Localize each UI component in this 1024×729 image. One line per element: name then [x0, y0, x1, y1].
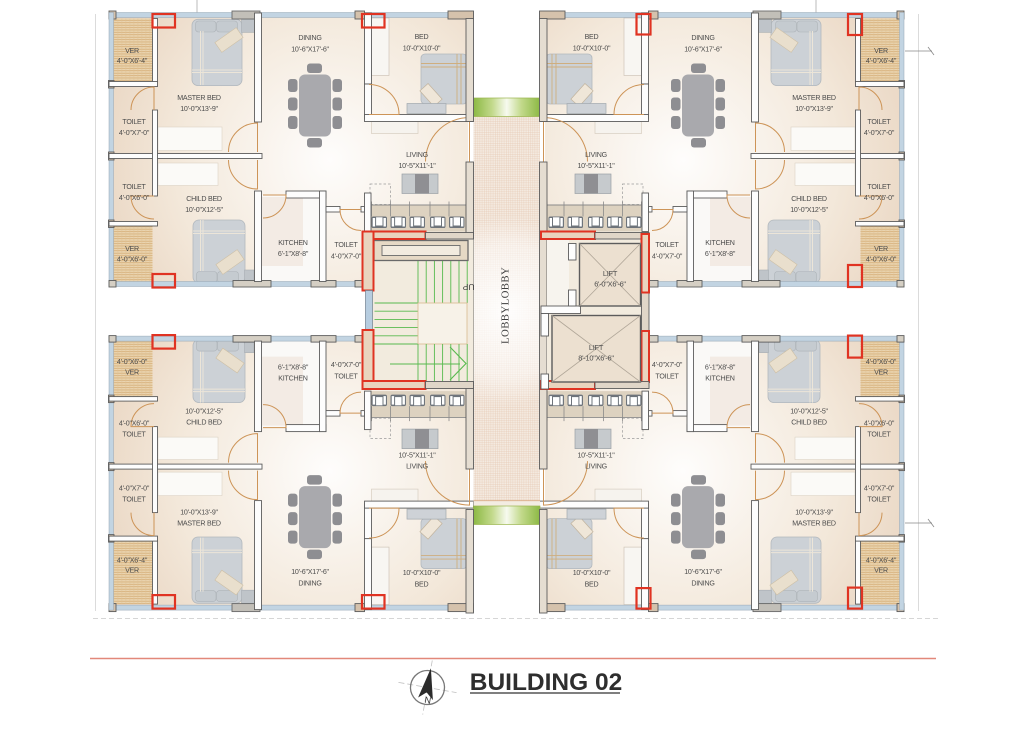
- svg-text:BED: BED: [415, 33, 429, 41]
- svg-text:TOILET: TOILET: [655, 373, 679, 381]
- svg-text:10'-0"X12'-5": 10'-0"X12'-5": [790, 206, 828, 214]
- svg-text:6'-1"X8'-8": 6'-1"X8'-8": [278, 250, 309, 258]
- svg-text:6'-1"X8'-8": 6'-1"X8'-8": [705, 364, 736, 372]
- svg-text:VER: VER: [125, 567, 139, 575]
- svg-text:LIVING: LIVING: [585, 151, 607, 159]
- svg-text:4'-0"X7'-0": 4'-0"X7'-0": [864, 129, 895, 137]
- svg-text:4'-0"X6'-0": 4'-0"X6'-0": [864, 194, 895, 202]
- svg-text:10'-5"X11'-1": 10'-5"X11'-1": [398, 162, 436, 170]
- svg-text:DINING: DINING: [298, 580, 321, 588]
- svg-text:DINING: DINING: [691, 34, 714, 42]
- svg-text:VER: VER: [874, 245, 888, 253]
- svg-text:LIVING: LIVING: [585, 463, 607, 471]
- svg-text:4'-0"X6'-0": 4'-0"X6'-0": [866, 256, 897, 264]
- svg-text:TOILET: TOILET: [334, 241, 358, 249]
- svg-text:LIFT: LIFT: [603, 269, 618, 278]
- svg-text:4'-0"X6'-0": 4'-0"X6'-0": [119, 420, 150, 428]
- svg-text:TOILET: TOILET: [867, 183, 891, 191]
- svg-text:MASTER BED: MASTER BED: [792, 520, 836, 528]
- svg-text:4'-0"X6'-0": 4'-0"X6'-0": [864, 420, 895, 428]
- svg-text:6'-0"X6'-6": 6'-0"X6'-6": [594, 280, 626, 289]
- svg-text:VER: VER: [874, 47, 888, 55]
- svg-text:10'-0"X12'-5": 10'-0"X12'-5": [185, 206, 223, 214]
- svg-text:LOBBYLOBBY: LOBBYLOBBY: [500, 267, 512, 344]
- svg-text:CHILD BED: CHILD BED: [186, 195, 222, 203]
- svg-text:KITCHEN: KITCHEN: [705, 375, 735, 383]
- svg-text:MASTER BED: MASTER BED: [177, 520, 221, 528]
- svg-text:4'-0"X6'-4": 4'-0"X6'-4": [117, 557, 148, 565]
- svg-text:6'-1"X8'-8": 6'-1"X8'-8": [705, 250, 736, 258]
- svg-text:LIVING: LIVING: [406, 463, 428, 471]
- svg-text:VER: VER: [125, 245, 139, 253]
- svg-text:VER: VER: [125, 47, 139, 55]
- svg-text:TOILET: TOILET: [334, 373, 358, 381]
- svg-text:4'-0"X7'-0": 4'-0"X7'-0": [119, 129, 150, 137]
- svg-text:10'-6"X17'-6": 10'-6"X17'-6": [291, 46, 329, 54]
- svg-text:TOILET: TOILET: [867, 431, 891, 439]
- svg-text:VER: VER: [125, 369, 139, 377]
- svg-text:10'-0"X13'-9": 10'-0"X13'-9": [795, 509, 833, 517]
- svg-text:LIVING: LIVING: [406, 151, 428, 159]
- svg-text:4'-0"X6'-4": 4'-0"X6'-4": [866, 57, 897, 65]
- svg-text:MASTER BED: MASTER BED: [177, 94, 221, 102]
- svg-text:6'-1"X8'-8": 6'-1"X8'-8": [278, 364, 309, 372]
- svg-text:TOILET: TOILET: [867, 118, 891, 126]
- svg-text:TOILET: TOILET: [122, 431, 146, 439]
- svg-text:KITCHEN: KITCHEN: [278, 239, 308, 247]
- svg-text:10'-0"X10'-0": 10'-0"X10'-0": [403, 45, 441, 53]
- svg-text:4'-0"X7'-0": 4'-0"X7'-0": [864, 485, 895, 493]
- svg-text:CHILD BED: CHILD BED: [791, 419, 827, 427]
- svg-text:TOILET: TOILET: [122, 183, 146, 191]
- svg-text:10'-0"X13'-9": 10'-0"X13'-9": [180, 509, 218, 517]
- svg-text:LIFT: LIFT: [589, 343, 604, 352]
- svg-text:8'-10"X6'-6": 8'-10"X6'-6": [578, 354, 614, 363]
- svg-text:TOILET: TOILET: [122, 118, 146, 126]
- svg-text:KITCHEN: KITCHEN: [705, 239, 735, 247]
- svg-text:BUILDING 02: BUILDING 02: [470, 669, 622, 696]
- svg-text:4'-0"X7'-0": 4'-0"X7'-0": [119, 485, 150, 493]
- svg-text:4'-0"X7'-0": 4'-0"X7'-0": [652, 253, 683, 261]
- svg-text:VER: VER: [874, 369, 888, 377]
- svg-text:DINING: DINING: [691, 580, 714, 588]
- svg-text:TOILET: TOILET: [122, 496, 146, 504]
- svg-text:10'-0"X12'-5": 10'-0"X12'-5": [185, 408, 223, 416]
- svg-text:10'-6"X17'-6": 10'-6"X17'-6": [291, 568, 329, 576]
- svg-text:10'-6"X17'-6": 10'-6"X17'-6": [684, 568, 722, 576]
- svg-text:10'-0"X12'-5": 10'-0"X12'-5": [790, 408, 828, 416]
- svg-text:10'-0"X13'-9": 10'-0"X13'-9": [795, 105, 833, 113]
- svg-text:TOILET: TOILET: [867, 496, 891, 504]
- svg-text:4'-0"X6'-4": 4'-0"X6'-4": [866, 557, 897, 565]
- svg-text:BED: BED: [415, 581, 429, 589]
- svg-text:CHILD BED: CHILD BED: [791, 195, 827, 203]
- svg-text:10'-6"X17'-6": 10'-6"X17'-6": [684, 46, 722, 54]
- svg-text:4'-0"X6'-0": 4'-0"X6'-0": [119, 194, 150, 202]
- svg-text:10'-0"X10'-0": 10'-0"X10'-0": [403, 569, 441, 577]
- svg-text:4'-0"X6'-0": 4'-0"X6'-0": [117, 358, 148, 366]
- svg-text:VER: VER: [874, 567, 888, 575]
- svg-text:4'-0"X7'-0": 4'-0"X7'-0": [331, 253, 362, 261]
- svg-text:4'-0"X6'-0": 4'-0"X6'-0": [866, 358, 897, 366]
- svg-text:10'-5"X11'-1": 10'-5"X11'-1": [577, 452, 615, 460]
- svg-text:KITCHEN: KITCHEN: [278, 375, 308, 383]
- svg-text:TOILET: TOILET: [655, 241, 679, 249]
- svg-text:UP: UP: [462, 282, 474, 292]
- svg-text:10'-5"X11'-1": 10'-5"X11'-1": [398, 452, 436, 460]
- svg-text:CHILD BED: CHILD BED: [186, 419, 222, 427]
- svg-text:10'-5"X11'-1": 10'-5"X11'-1": [577, 162, 615, 170]
- svg-text:4'-0"X6'-0": 4'-0"X6'-0": [117, 256, 148, 264]
- svg-text:4'-0"X6'-4": 4'-0"X6'-4": [117, 57, 148, 65]
- svg-text:BED: BED: [585, 581, 599, 589]
- svg-text:10'-0"X10'-0": 10'-0"X10'-0": [573, 45, 611, 53]
- svg-text:MASTER BED: MASTER BED: [792, 94, 836, 102]
- svg-text:DINING: DINING: [298, 34, 321, 42]
- svg-text:4'-0"X7'-0": 4'-0"X7'-0": [331, 361, 362, 369]
- svg-text:10'-0"X10'-0": 10'-0"X10'-0": [573, 569, 611, 577]
- svg-text:4'-0"X7'-0": 4'-0"X7'-0": [652, 361, 683, 369]
- svg-text:10'-0"X13'-9": 10'-0"X13'-9": [180, 105, 218, 113]
- svg-text:BED: BED: [585, 33, 599, 41]
